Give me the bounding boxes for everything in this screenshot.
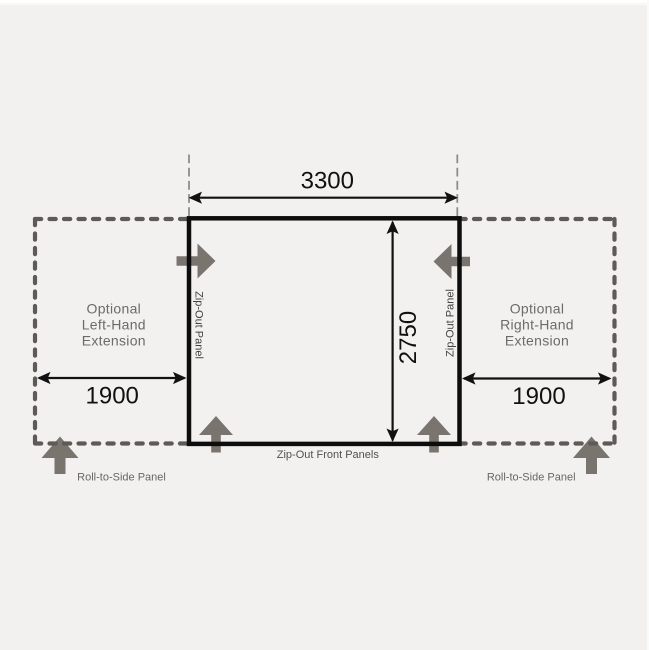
svg-text:1900: 1900 — [512, 383, 565, 410]
svg-text:Zip-Out Front Panels: Zip-Out Front Panels — [277, 449, 380, 461]
svg-text:Zip-Out Panel: Zip-Out Panel — [445, 289, 457, 357]
svg-text:Extension: Extension — [82, 333, 146, 349]
svg-text:1900: 1900 — [86, 383, 139, 410]
svg-text:2750: 2750 — [395, 311, 422, 364]
svg-text:Right-Hand: Right-Hand — [500, 317, 574, 333]
svg-text:Extension: Extension — [505, 333, 569, 349]
svg-text:Roll-to-Side Panel: Roll-to-Side Panel — [77, 472, 166, 484]
svg-text:Optional: Optional — [510, 301, 565, 317]
svg-text:Optional: Optional — [87, 301, 142, 317]
svg-text:Roll-to-Side Panel: Roll-to-Side Panel — [487, 472, 576, 484]
svg-text:Zip-Out Panel: Zip-Out Panel — [192, 291, 204, 359]
svg-text:Left-Hand: Left-Hand — [82, 317, 146, 333]
svg-text:3300: 3300 — [301, 168, 354, 195]
